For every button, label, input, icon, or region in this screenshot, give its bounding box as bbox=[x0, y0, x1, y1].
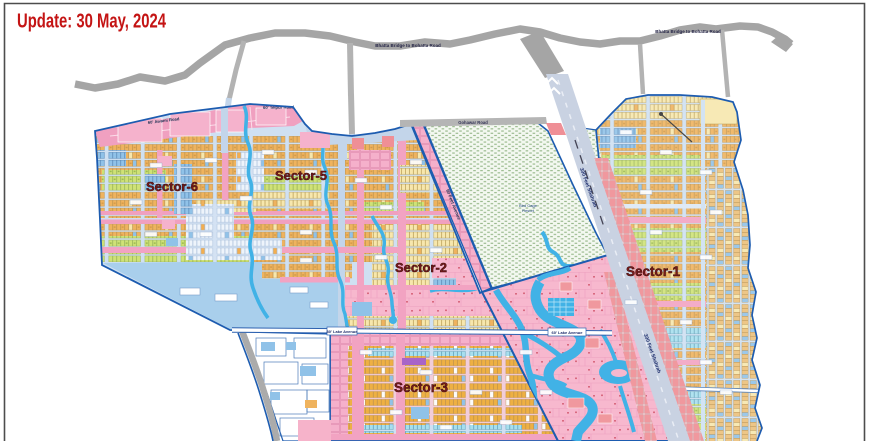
svg-text:Sector-6: Sector-6 bbox=[146, 179, 198, 194]
svg-text:Bhatta Bridge to Bohatta Road: Bhatta Bridge to Bohatta Road bbox=[655, 29, 721, 34]
svg-text:60' Lake Avenue: 60' Lake Avenue bbox=[552, 330, 584, 335]
svg-text:80' Lake Avenue: 80' Lake Avenue bbox=[327, 329, 359, 334]
svg-text:Sector-5: Sector-5 bbox=[275, 168, 327, 183]
svg-text:Sector-3: Sector-3 bbox=[394, 380, 449, 395]
svg-text:Update: 30 May, 2024: Update: 30 May, 2024 bbox=[17, 11, 167, 33]
svg-text:Resort: Resort bbox=[522, 208, 535, 213]
svg-text:Sector-1: Sector-1 bbox=[626, 264, 681, 279]
svg-text:Gohawar Road: Gohawar Road bbox=[458, 120, 488, 125]
svg-text:Sector-2: Sector-2 bbox=[395, 260, 447, 275]
svg-text:Bhatta Bridge to Bohatta Road: Bhatta Bridge to Bohatta Road bbox=[375, 43, 441, 48]
